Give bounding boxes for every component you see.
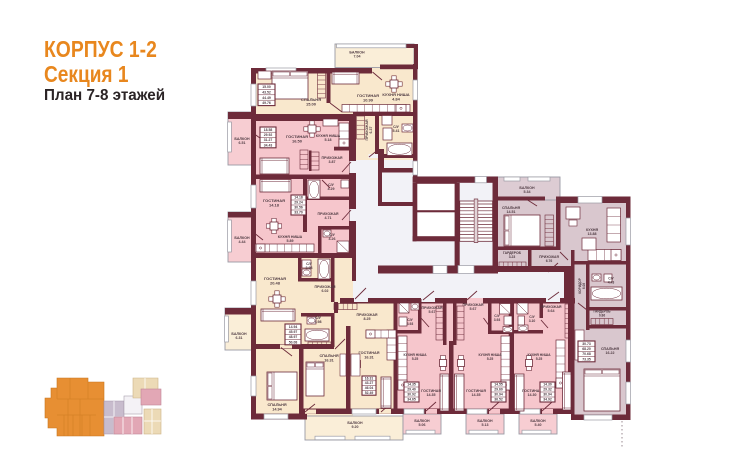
svg-text:5.06: 5.06 [419,423,426,427]
svg-text:45.97: 45.97 [289,330,298,334]
svg-text:16.22: 16.22 [606,351,615,355]
svg-text:3.93: 3.93 [407,322,414,326]
svg-text:44.49: 44.49 [262,96,271,100]
svg-text:14.30: 14.30 [543,383,552,387]
svg-text:3.87: 3.87 [329,160,336,164]
svg-text:ГОСТИНАЯ: ГОСТИНАЯ [359,351,380,355]
svg-text:43.27: 43.27 [365,381,374,385]
svg-text:4.29: 4.29 [328,187,335,191]
svg-text:34.92: 34.92 [543,398,552,402]
svg-text:9.20: 9.20 [352,425,359,429]
svg-text:14.35: 14.35 [427,393,436,397]
svg-text:16.31: 16.31 [365,376,374,380]
svg-text:6.31: 6.31 [236,336,243,340]
svg-text:31.27: 31.27 [264,138,273,142]
svg-text:14.94: 14.94 [289,325,298,329]
svg-text:16.31: 16.31 [324,358,334,362]
svg-text:34.43: 34.43 [264,143,273,147]
svg-text:14.55: 14.55 [494,383,503,387]
svg-text:3.23: 3.23 [509,255,516,259]
svg-text:8.25: 8.25 [364,317,371,321]
svg-text:6.02: 6.02 [322,289,329,293]
svg-text:52.49: 52.49 [365,391,374,395]
svg-text:30.56: 30.56 [294,206,303,210]
svg-text:29.32: 29.32 [543,388,552,392]
svg-text:5.41: 5.41 [393,129,400,133]
svg-text:3.93: 3.93 [306,266,313,270]
svg-text:70.68: 70.68 [582,352,591,356]
svg-text:7.04: 7.04 [354,55,361,59]
svg-text:5.67: 5.67 [429,310,436,314]
svg-text:29.40: 29.40 [407,388,416,392]
svg-text:4.43: 4.43 [608,281,615,285]
svg-text:36.52: 36.52 [494,398,503,402]
svg-text:3.10: 3.10 [529,319,536,323]
svg-text:5.67: 5.67 [470,307,477,311]
svg-text:46.04: 46.04 [365,386,374,390]
svg-text:30.92: 30.92 [407,393,416,397]
svg-text:30.94: 30.94 [494,393,503,397]
svg-text:5.18: 5.18 [325,138,332,142]
svg-text:5.64: 5.64 [548,309,555,313]
svg-text:16.50: 16.50 [292,139,303,144]
svg-text:49.76: 49.76 [262,101,271,105]
svg-text:5.89: 5.89 [287,239,294,243]
svg-text:14.35: 14.35 [472,393,481,397]
svg-text:15.00: 15.00 [306,102,317,107]
svg-text:6.08: 6.08 [582,283,586,289]
svg-text:14.51: 14.51 [507,210,516,214]
svg-text:4.84: 4.84 [392,97,401,102]
svg-text:5.40: 5.40 [535,423,542,427]
svg-text:5.25: 5.25 [536,357,543,361]
svg-text:29.92: 29.92 [264,133,273,137]
svg-text:6.37: 6.37 [369,127,373,134]
svg-text:5.13: 5.13 [482,423,489,427]
svg-text:16.31: 16.31 [364,355,374,359]
svg-text:73.35: 73.35 [582,357,591,361]
svg-text:4.71: 4.71 [325,216,332,220]
svg-text:14.18: 14.18 [294,196,303,200]
svg-text:43.52: 43.52 [262,90,271,94]
svg-text:50.08: 50.08 [289,340,298,344]
svg-text:15.00: 15.00 [262,85,271,89]
svg-text:30.73: 30.73 [582,342,591,346]
svg-text:29.60: 29.60 [494,388,503,392]
svg-text:СПАЛЬНЯ: СПАЛЬНЯ [319,354,338,358]
svg-text:6.51: 6.51 [239,141,246,145]
svg-text:14.18: 14.18 [269,203,280,208]
svg-text:14.94: 14.94 [272,407,282,411]
svg-text:5.25: 5.25 [412,357,419,361]
svg-text:13.88: 13.88 [588,232,597,236]
svg-text:6.76: 6.76 [546,259,553,263]
svg-text:20.48: 20.48 [270,281,281,286]
svg-text:29.24: 29.24 [294,201,303,205]
svg-text:4.26: 4.26 [329,237,336,241]
svg-text:0.86: 0.86 [599,313,605,317]
svg-text:48.97: 48.97 [289,335,298,339]
svg-text:14.30: 14.30 [528,393,537,397]
svg-text:33.70: 33.70 [294,211,303,215]
svg-text:68.20: 68.20 [582,347,591,351]
svg-text:34.65: 34.65 [407,398,416,402]
svg-text:10.99: 10.99 [363,98,374,103]
svg-text:4.44: 4.44 [239,240,246,244]
svg-text:5.25: 5.25 [487,357,494,361]
svg-text:18.58: 18.58 [264,128,273,132]
svg-text:4.98: 4.98 [315,320,322,324]
svg-text:3.93: 3.93 [494,318,501,322]
svg-text:5.34: 5.34 [524,190,531,194]
svg-text:СПАЛЬНЯ: СПАЛЬНЯ [267,403,286,407]
svg-text:14.35: 14.35 [407,383,416,387]
svg-text:30.94: 30.94 [543,393,552,397]
